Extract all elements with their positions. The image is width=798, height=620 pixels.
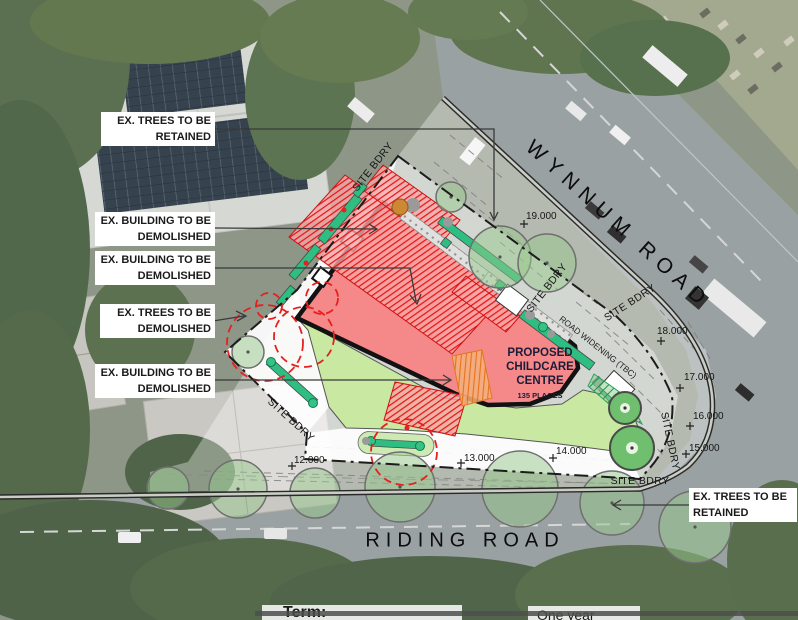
site-plan-page: EX. TREES TO BE RETAINED EX. BUILDING TO…	[0, 0, 798, 620]
contour-label-14: 14.000	[556, 446, 587, 457]
callout-trees-retained-top: EX. TREES TO BE RETAINED	[101, 112, 215, 146]
callout-line: EX. BUILDING TO BE	[101, 367, 211, 379]
callout-building-demolished-3: EX. BUILDING TO BE DEMOLISHED	[95, 364, 215, 398]
callout-trees-demolished: EX. TREES TO BE DEMOLISHED	[100, 304, 215, 338]
contour-label-13: 13.000	[464, 453, 495, 464]
contour-label-15: 15.000	[689, 443, 720, 454]
proposed-centre-label: PROPOSED CHILDCARE CENTRE 135 PLACES	[478, 346, 602, 402]
proposed-line-3: CENTRE	[516, 375, 563, 387]
callout-building-demolished-1: EX. BUILDING TO BE DEMOLISHED	[95, 212, 215, 246]
contour-label-19: 19.000	[526, 211, 557, 222]
callout-line: EX. BUILDING TO BE	[101, 215, 211, 227]
feature-dot	[392, 199, 408, 215]
callout-line: RETAINED	[156, 131, 211, 143]
callout-trees-retained-bottom: EX. TREES TO BE RETAINED	[689, 488, 797, 522]
contour-label-12: 12.000	[294, 455, 325, 466]
contour-label-16: 16.000	[693, 411, 724, 422]
contour-label-17: 17.000	[684, 372, 715, 383]
callout-line: EX. TREES TO BE	[693, 491, 787, 503]
contour-label-18: 18.000	[657, 326, 688, 337]
proposed-line-1: PROPOSED	[507, 347, 572, 359]
callout-line: DEMOLISHED	[138, 270, 211, 282]
callout-line: RETAINED	[693, 507, 748, 519]
callout-line: DEMOLISHED	[138, 383, 211, 395]
footer-rule	[255, 611, 798, 616]
proposed-line-2: CHILDCARE	[506, 361, 574, 373]
road-label-riding: RIDING ROAD	[365, 530, 564, 553]
proposed-places: 135 PLACES	[517, 391, 562, 400]
callout-line: DEMOLISHED	[138, 323, 211, 335]
callout-line: EX. TREES TO BE	[117, 115, 211, 127]
callout-line: EX. TREES TO BE	[117, 307, 211, 319]
callout-building-demolished-2: EX. BUILDING TO BE DEMOLISHED	[95, 251, 215, 285]
callout-line: DEMOLISHED	[138, 231, 211, 243]
callout-line: EX. BUILDING TO BE	[101, 254, 211, 266]
site-bdry-label: SITE BDRY	[611, 475, 670, 487]
